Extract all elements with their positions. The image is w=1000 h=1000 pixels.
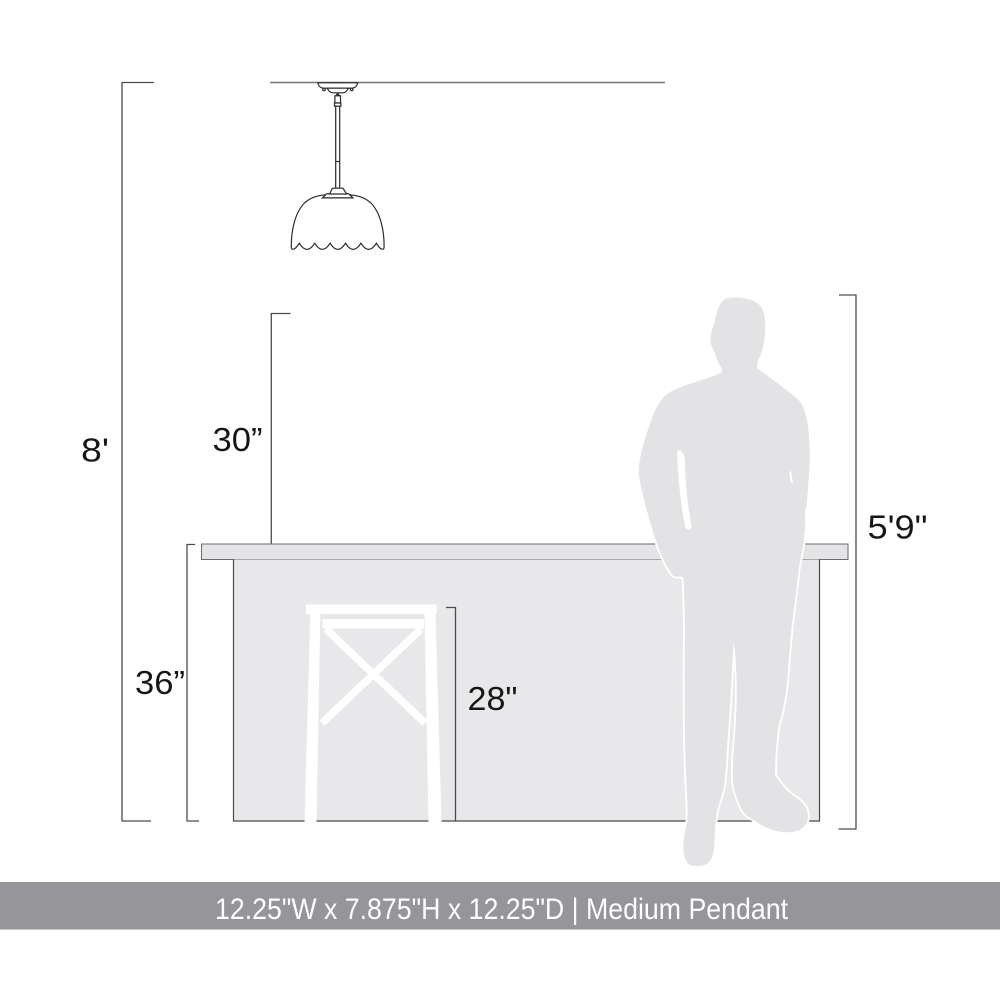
svg-text:8': 8' bbox=[81, 433, 109, 470]
svg-text:36”: 36” bbox=[135, 665, 185, 702]
svg-text:30”: 30” bbox=[213, 422, 263, 459]
svg-text:12.25"W x 7.875"H x 12.25"D |: 12.25"W x 7.875"H x 12.25"D | Medium Pen… bbox=[215, 893, 788, 926]
svg-text:5'9": 5'9" bbox=[868, 510, 928, 547]
svg-text:28": 28" bbox=[468, 681, 518, 718]
